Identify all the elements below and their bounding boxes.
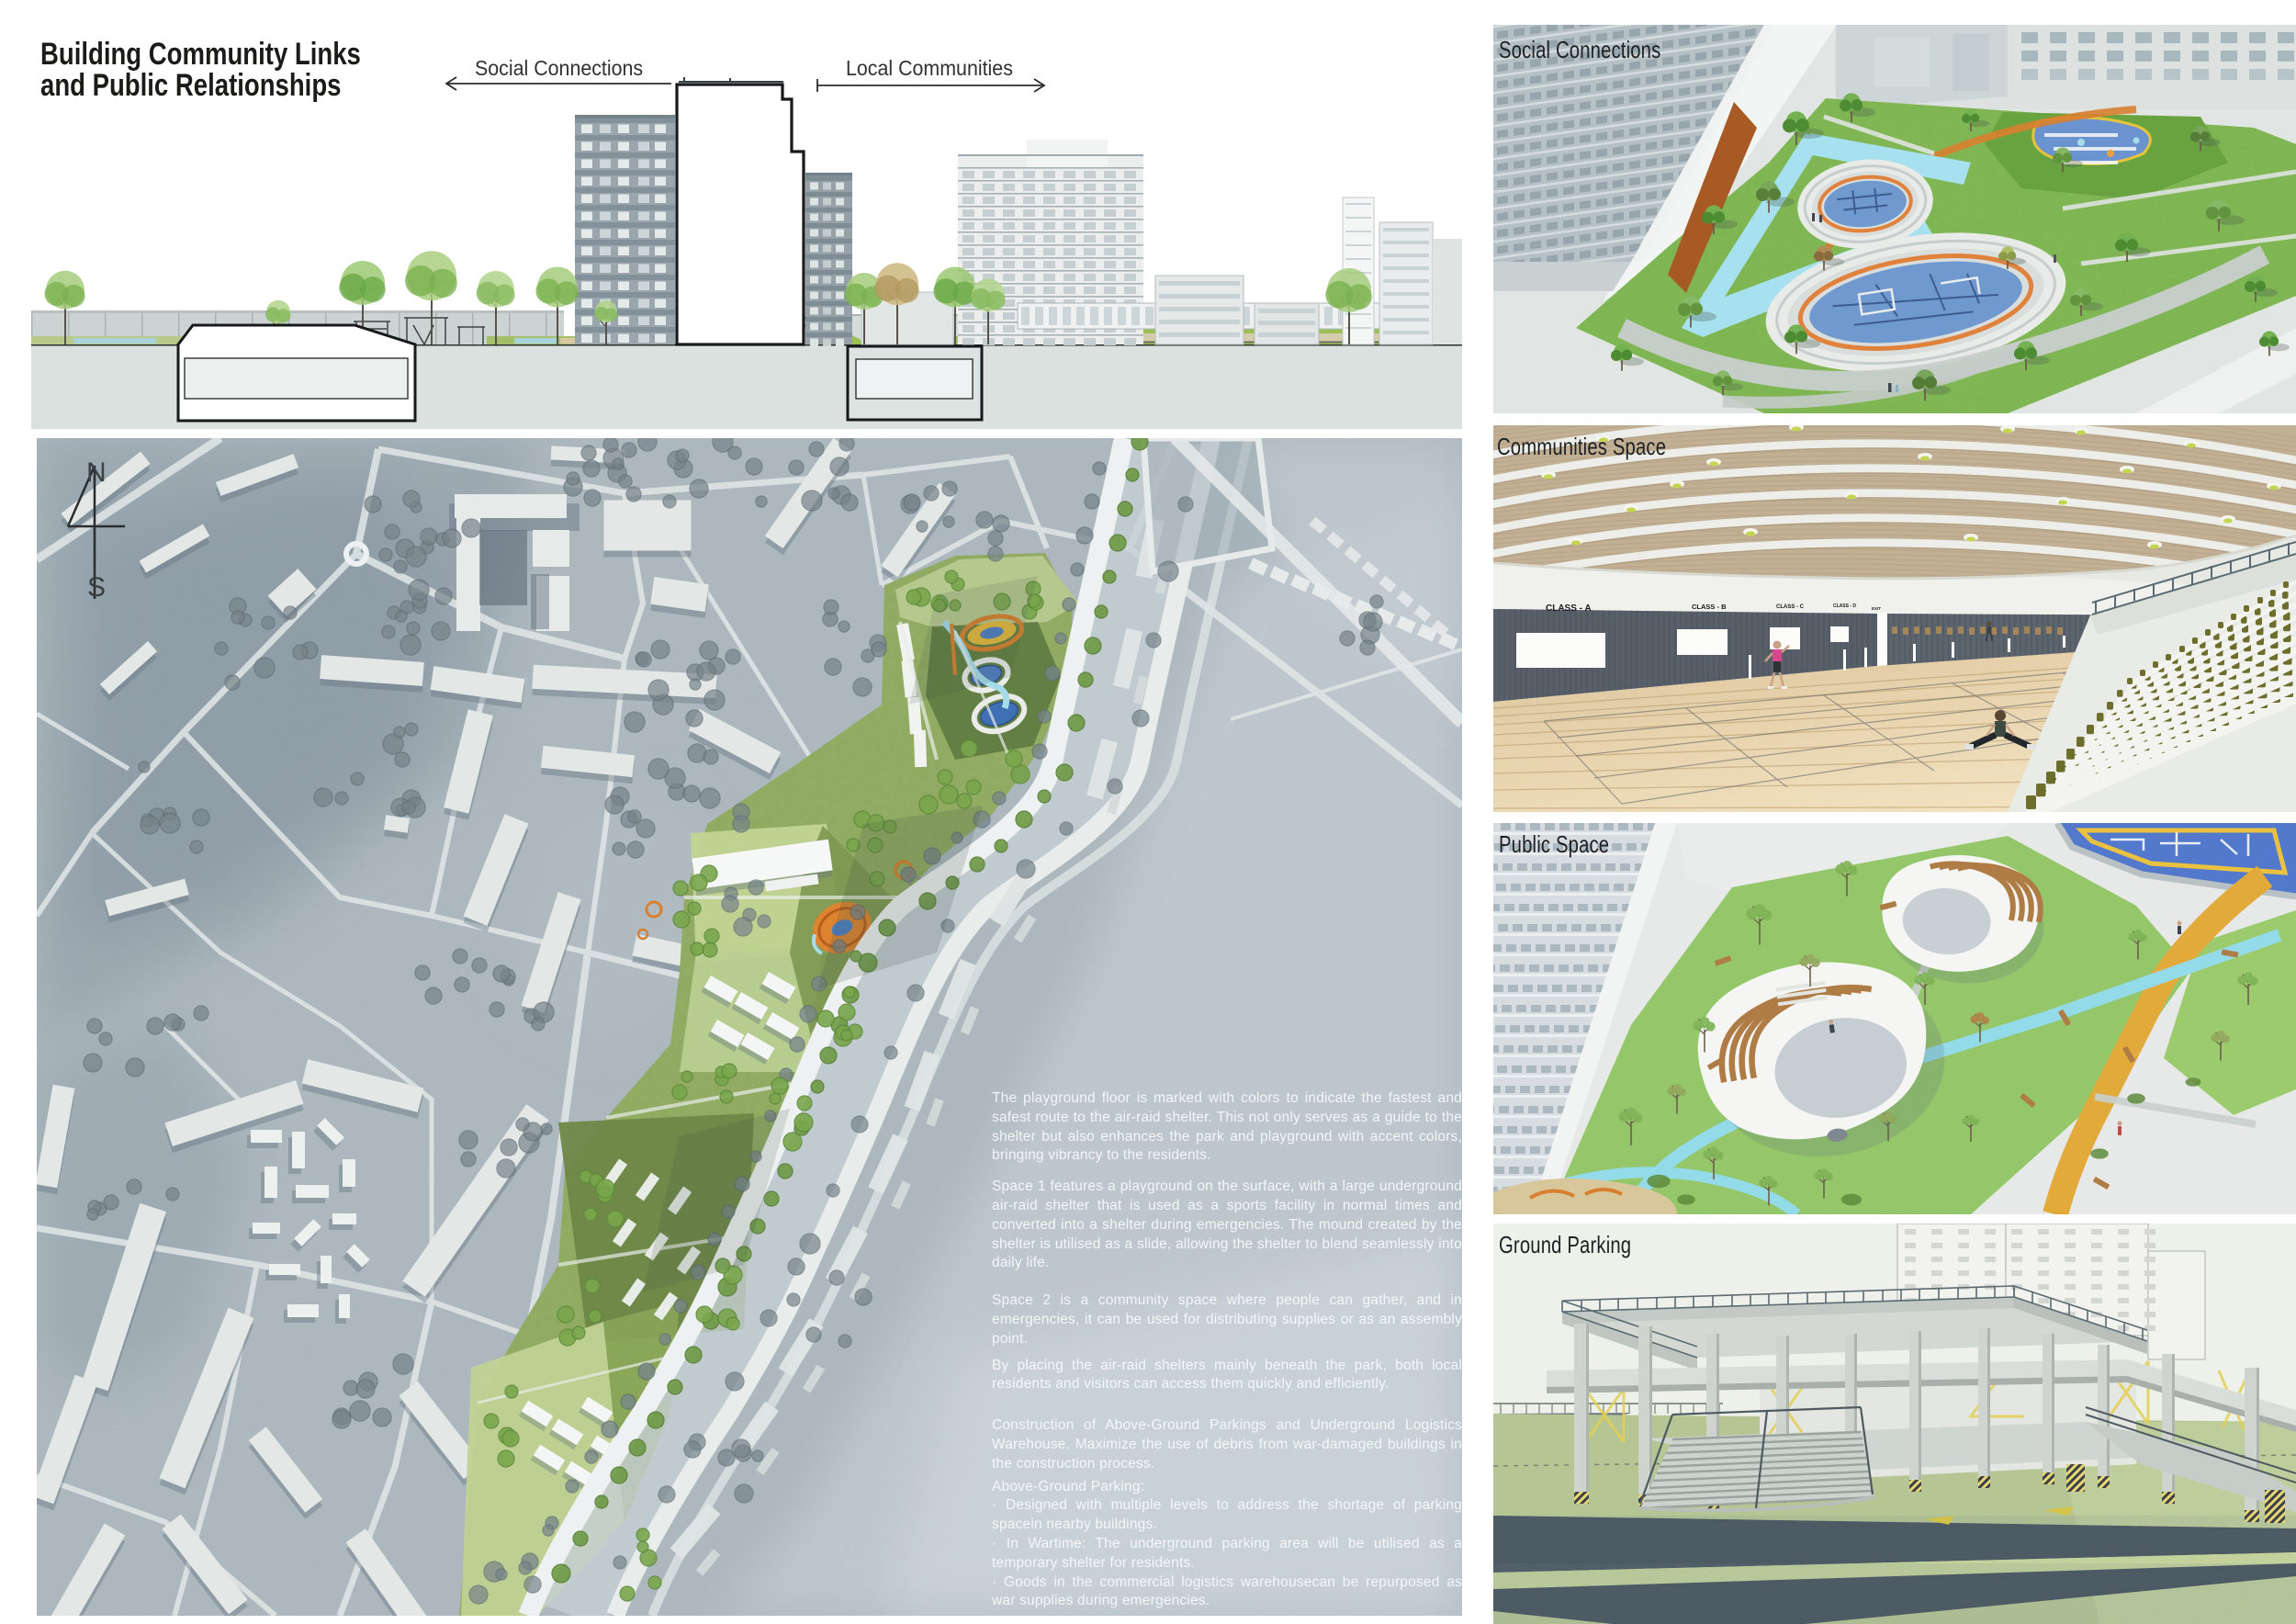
svg-text:CLASS - B: CLASS - B (1692, 603, 1727, 611)
svg-text:CLASS - D: CLASS - D (1833, 603, 1856, 609)
svg-text:EXIT: EXIT (1872, 606, 1881, 611)
svg-text:CLASS - C: CLASS - C (1776, 604, 1805, 610)
svg-text:S: S (87, 572, 106, 603)
svg-text:CLASS - A: CLASS - A (1546, 603, 1592, 614)
svg-text:N: N (86, 457, 107, 488)
